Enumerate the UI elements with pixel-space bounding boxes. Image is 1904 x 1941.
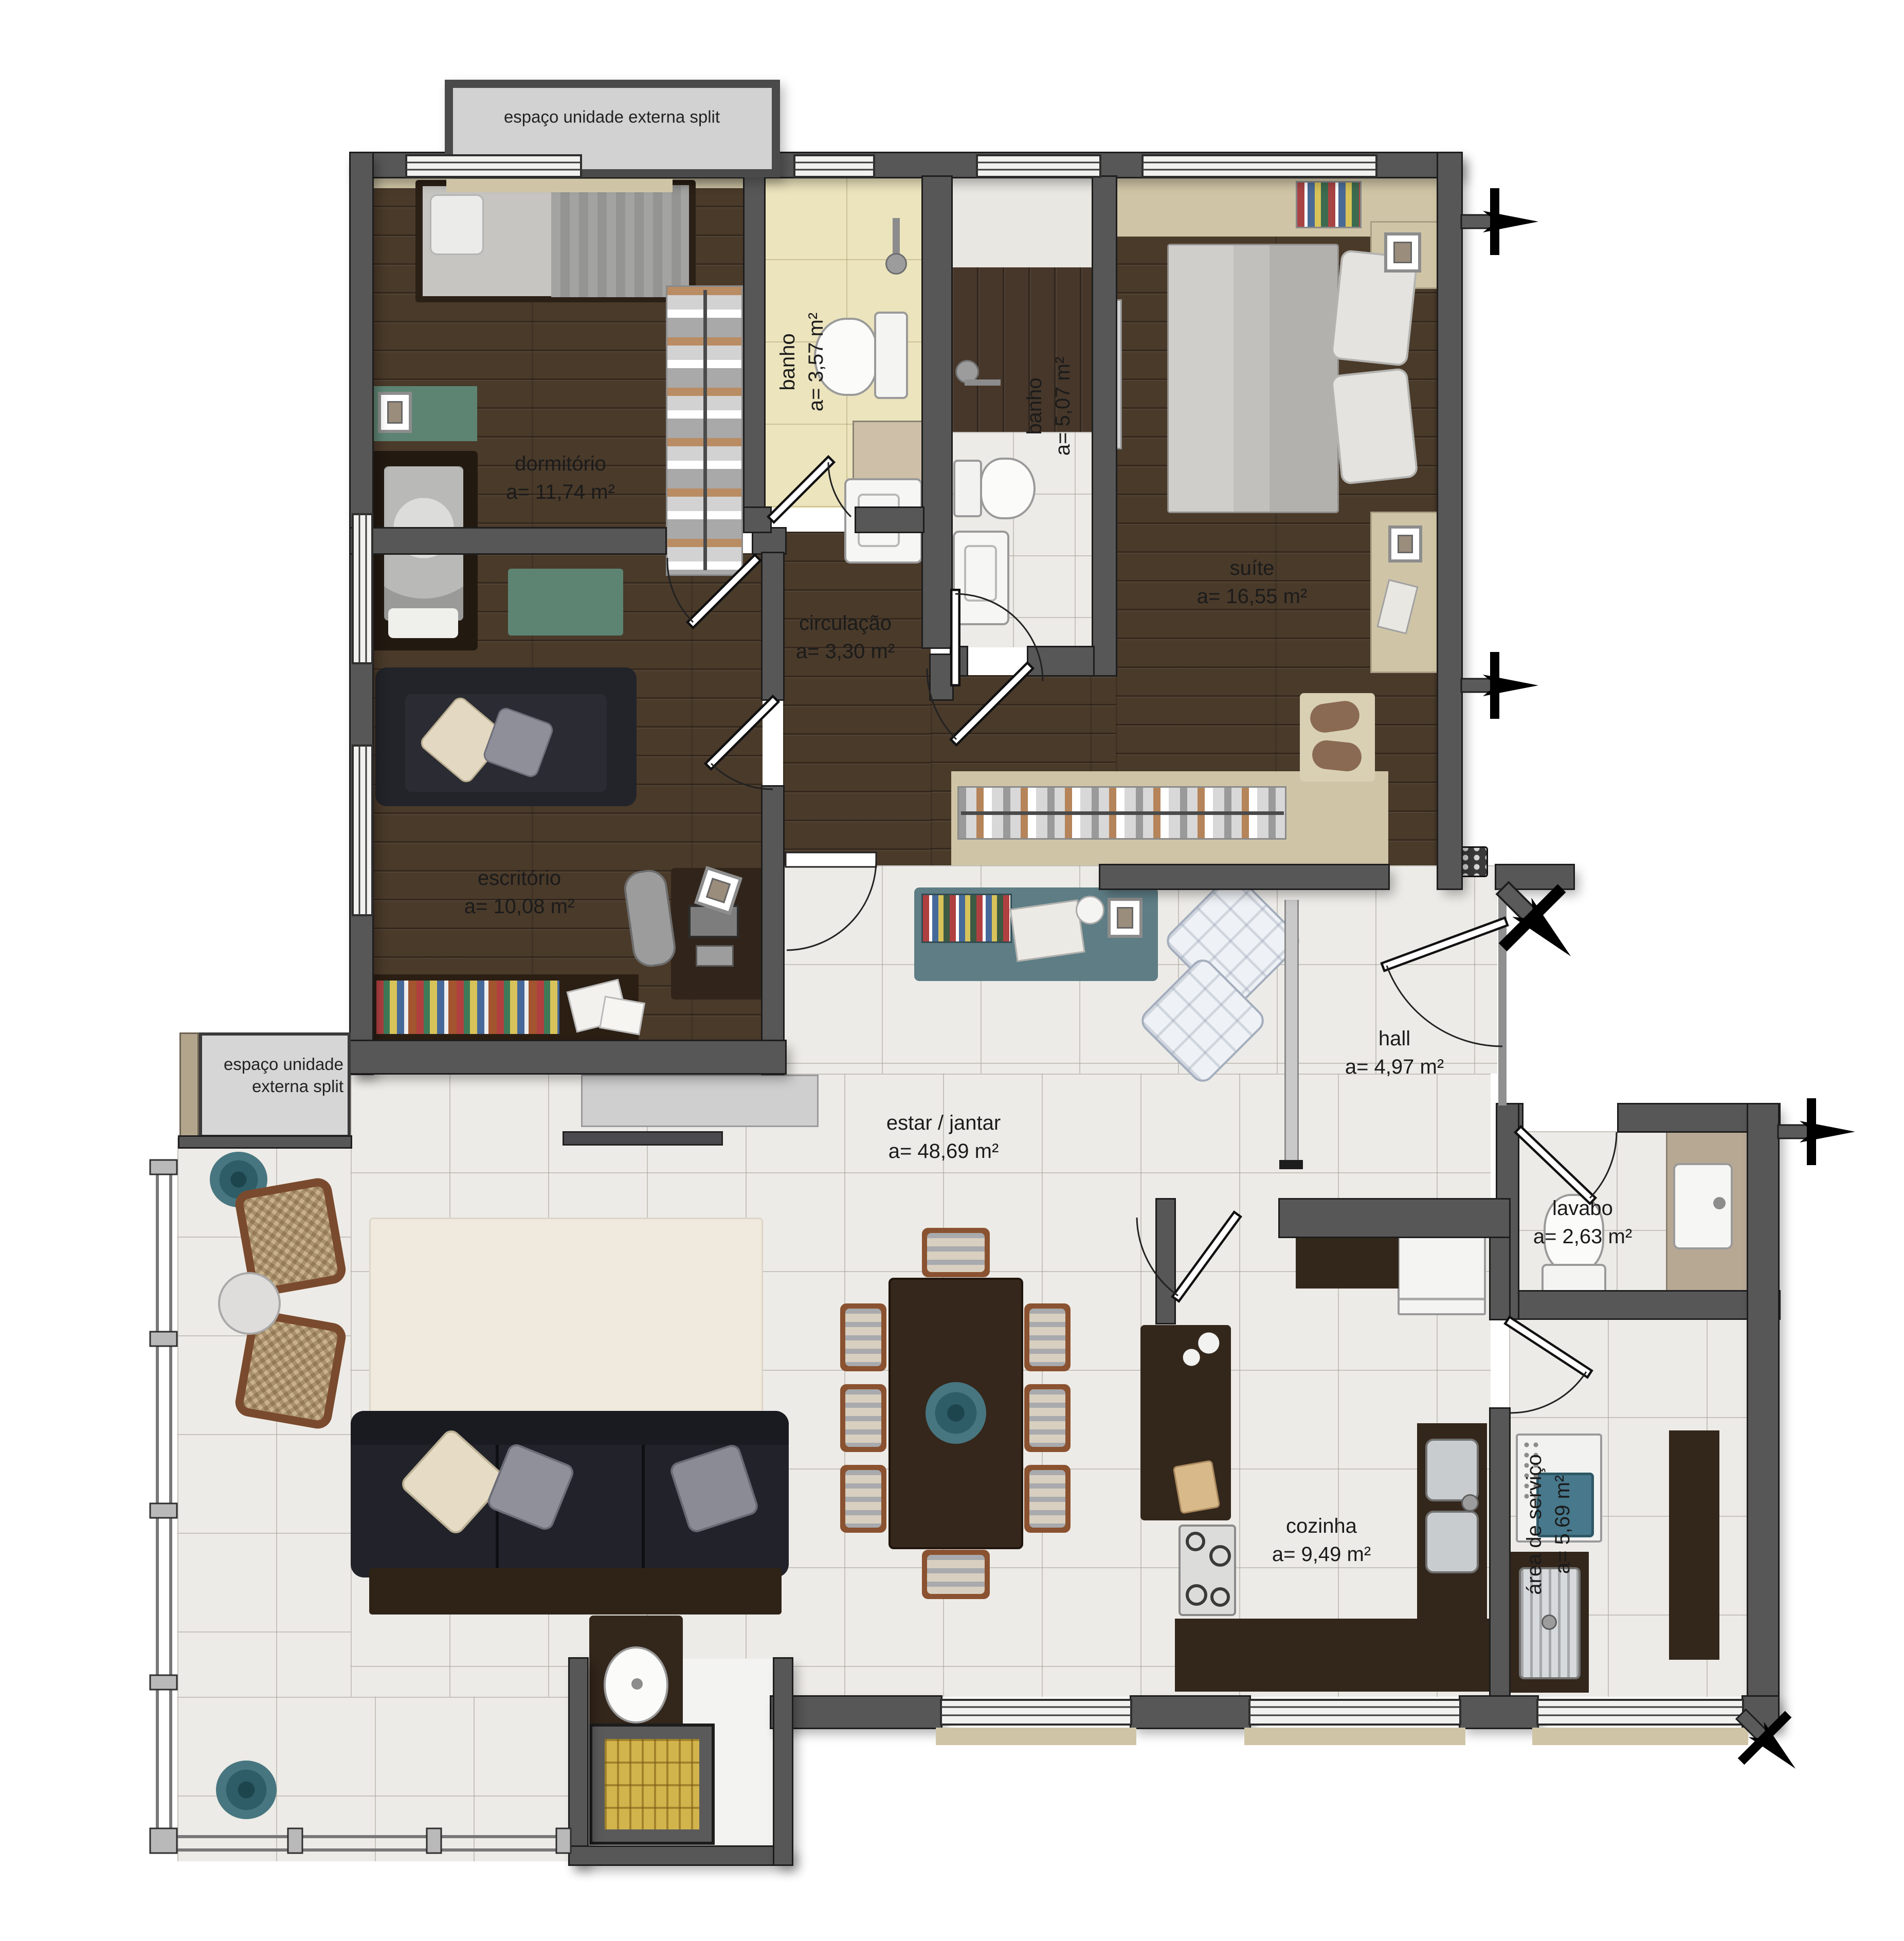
- split-box-left-wall: [179, 1137, 351, 1147]
- room-divider-panel: [1284, 900, 1299, 1163]
- bbq-grill: [605, 1739, 699, 1829]
- kitchen-peninsula: [1140, 1325, 1231, 1520]
- dining-chair-left-3: [840, 1465, 886, 1533]
- wall-escritorio-right-a: [763, 553, 783, 699]
- desk-keyboard: [696, 945, 734, 967]
- wall-dorm-banho: [745, 177, 764, 529]
- sofa-back: [351, 1411, 789, 1445]
- rug-frame: [1108, 898, 1143, 938]
- bed-pillow-2: [1330, 368, 1419, 485]
- wall-escritorio-bottom: [351, 1041, 785, 1073]
- split-box-top: [445, 80, 780, 177]
- wall-suite-bottom-a: [1100, 865, 1388, 888]
- fridge-door-line: [1400, 1298, 1484, 1300]
- sink-basin: [964, 545, 997, 602]
- kitchen-sink-1: [1425, 1439, 1479, 1501]
- room-label-dormitorio: dormitórioa= 11,74 m²: [506, 450, 615, 506]
- floor-circulacao: [783, 532, 931, 865]
- wall-dorm-bottom-b: [753, 529, 785, 553]
- tank-faucet: [1542, 1615, 1557, 1630]
- toilet-banho1-tank: [874, 312, 908, 399]
- books-row: [376, 981, 559, 1034]
- bed-blanket: [551, 185, 689, 297]
- wall-kitchen-area-b: [1491, 1409, 1509, 1697]
- wall-dorm-bottom-a: [351, 529, 665, 553]
- dining-chair-right-2: [1024, 1384, 1071, 1452]
- tv-panel: [563, 1131, 723, 1146]
- green-mat: [508, 569, 623, 636]
- wall-kitchen-top: [1280, 1200, 1509, 1237]
- room-label-banho1: banhoa= 3,57 m²: [774, 313, 830, 411]
- dining-chair-right-1: [1024, 1303, 1071, 1371]
- shelf-books-suite: [1296, 181, 1362, 228]
- wall-bbq-right: [774, 1659, 792, 1864]
- nightstand-frame-top: [1384, 232, 1421, 273]
- room-label-estar-jantar: estar / jantara= 48,69 m²: [886, 1109, 1001, 1166]
- wall-banho2-bottom-a: [951, 647, 967, 675]
- tall-cabinet: [1669, 1430, 1719, 1660]
- shower-column-icon: [893, 218, 900, 256]
- room-label-hall: halla= 4,97 m²: [1345, 1025, 1444, 1081]
- wall-banho1-banho2: [923, 177, 951, 647]
- desk-picture-frame: [378, 392, 412, 433]
- sink-banho2: [953, 531, 1009, 625]
- stove: [1178, 1525, 1236, 1616]
- wall-bottom-a: [771, 1697, 941, 1728]
- dining-chair-left-2: [840, 1384, 886, 1452]
- wall-banho1-bottom-b: [856, 508, 923, 532]
- bookshelf: [369, 974, 639, 1041]
- shower-head-icon: [885, 253, 907, 275]
- dining-chair-right-3: [1024, 1465, 1071, 1533]
- deco-bowls: [1178, 1332, 1222, 1368]
- wall-kitchen-stub: [1157, 1200, 1174, 1323]
- rug-tray: [1076, 896, 1104, 924]
- sink-faucet: [1713, 1197, 1726, 1209]
- wall-bbq-bottom: [570, 1847, 792, 1864]
- cutting-board: [1172, 1460, 1220, 1514]
- floor-mat-dark: [369, 1568, 782, 1615]
- single-bed: [415, 180, 696, 302]
- burner: [1210, 1587, 1230, 1607]
- room-label-banho2: banhoa= 5,07 m²: [1021, 357, 1077, 456]
- wardrobe-dormitorio: [666, 285, 743, 576]
- toilet-banho2-tank: [953, 460, 982, 517]
- label-split-top: espaço unidade externa split: [504, 106, 720, 129]
- divider-cap: [1279, 1160, 1303, 1169]
- dining-chair-top: [922, 1228, 990, 1277]
- tv-cabinet: [581, 1075, 819, 1127]
- toilet-banho2: [980, 458, 1036, 519]
- wardrobe-rod: [961, 811, 1284, 815]
- wall-bbq-left: [570, 1659, 587, 1864]
- bed-runner: [1234, 245, 1270, 512]
- terrace-plant-bottom: [216, 1761, 277, 1819]
- wall-bottom-c: [1460, 1697, 1537, 1728]
- nightstand-frame-bottom: [1388, 525, 1422, 563]
- wall-bottom-b: [1131, 1697, 1249, 1728]
- floor-plan: espaço unidade externa split espaço unid…: [0, 0, 1904, 1941]
- room-label-escritorio: escritórioa= 10,08 m²: [464, 864, 575, 921]
- rug-books-row: [921, 894, 1012, 943]
- wall-banho2-suite: [1093, 177, 1116, 675]
- wall-kitchen-area-a: [1491, 1237, 1509, 1319]
- papers-2: [599, 996, 645, 1036]
- kitchen-sink-2: [1425, 1511, 1479, 1573]
- floor-banho2-shower: [951, 177, 1093, 267]
- wall-suite-right: [1438, 153, 1461, 888]
- wall-banho1-bottom-a: [745, 508, 770, 532]
- burner: [1186, 1584, 1207, 1606]
- burner: [1186, 1532, 1205, 1551]
- sofa-seam-2: [642, 1445, 645, 1577]
- bed-pillow: [430, 194, 484, 255]
- dining-chair-left-1: [840, 1303, 886, 1371]
- room-label-circulacao: circulaçãoa= 3,30 m²: [796, 609, 895, 666]
- wall-lavabo-bottom: [1497, 1292, 1779, 1318]
- wall-bottom-d: [1743, 1697, 1778, 1728]
- burner: [1209, 1545, 1231, 1567]
- room-label-area-servico: área de serviçoa= 5,69 m²: [1520, 1454, 1577, 1594]
- rug-magazines: [1009, 899, 1085, 962]
- label-split-left: espaço unidadeexterna split: [224, 1054, 343, 1098]
- wardrobe-rod: [703, 290, 707, 570]
- wall-left: [351, 153, 372, 1074]
- split-box-left-tan: [179, 1032, 199, 1138]
- table-centerpiece-plant: [926, 1382, 986, 1444]
- room-label-lavabo: lavaboa= 2,63 m²: [1533, 1194, 1632, 1251]
- counter-banho1: [853, 421, 923, 484]
- double-bed: [1167, 244, 1339, 513]
- bed-fold: [1169, 245, 1234, 512]
- wall-right-exterior: [1748, 1104, 1778, 1728]
- dining-chair-bottom: [922, 1550, 990, 1599]
- room-label-suite: suítea= 16,55 m²: [1197, 554, 1308, 611]
- wall-banho2-bottom-b: [1028, 647, 1093, 675]
- bbq-sink-drain: [631, 1678, 643, 1690]
- lavabo-sink: [1673, 1163, 1733, 1249]
- room-label-cozinha: cozinhaa= 9,49 m²: [1272, 1512, 1371, 1569]
- wardrobe-suite: [957, 786, 1286, 840]
- marble-side-table: [218, 1272, 281, 1335]
- wall-circ-corridor-stub: [931, 655, 952, 699]
- wall-escritorio-right-b: [763, 787, 783, 1074]
- wall-suite-bottom-b: [1496, 865, 1573, 888]
- shower-arm-banho2: [965, 379, 1001, 386]
- fridge: [1398, 1228, 1486, 1315]
- bbq-sink: [604, 1646, 668, 1724]
- kid-bed-pillow: [388, 608, 458, 638]
- kitchen-faucet: [1461, 1494, 1479, 1512]
